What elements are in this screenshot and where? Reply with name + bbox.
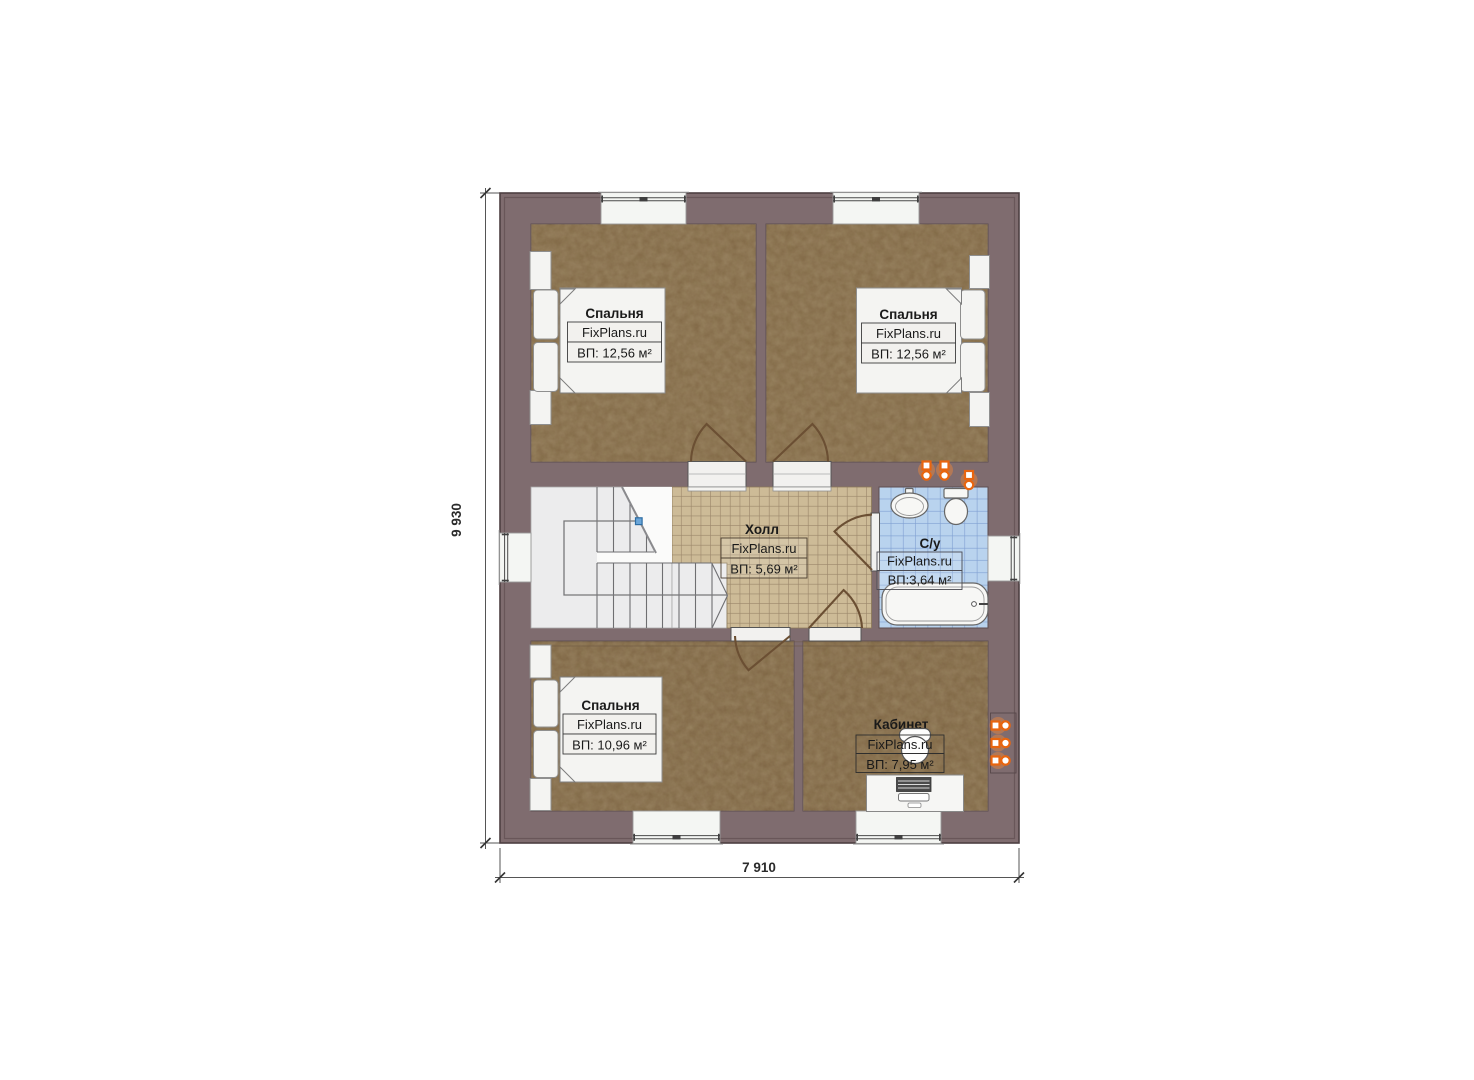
svg-text:FixPlans.ru: FixPlans.ru [577, 717, 642, 732]
svg-text:Спальня: Спальня [581, 698, 639, 713]
svg-text:FixPlans.ru: FixPlans.ru [876, 326, 941, 341]
svg-text:FixPlans.ru: FixPlans.ru [867, 737, 932, 752]
svg-text:ВП: 12,56 м²: ВП: 12,56 м² [577, 346, 652, 361]
svg-text:9 930: 9 930 [449, 503, 464, 537]
svg-text:ВП: 7,95 м²: ВП: 7,95 м² [866, 757, 934, 772]
svg-text:Спальня: Спальня [585, 306, 643, 321]
svg-text:7 910: 7 910 [742, 860, 776, 875]
svg-text:ВП: 5,69 м²: ВП: 5,69 м² [730, 562, 798, 577]
svg-text:FixPlans.ru: FixPlans.ru [731, 541, 796, 556]
svg-text:С/у: С/у [919, 536, 941, 551]
svg-text:ВП: 10,96 м²: ВП: 10,96 м² [572, 738, 647, 753]
svg-text:ВП: 12,56 м²: ВП: 12,56 м² [871, 347, 946, 362]
svg-text:Спальня: Спальня [879, 307, 937, 322]
svg-text:FixPlans.ru: FixPlans.ru [887, 554, 952, 569]
svg-text:Холл: Холл [745, 522, 779, 537]
svg-text:ВП:3,64 м²: ВП:3,64 м² [888, 573, 952, 588]
svg-text:FixPlans.ru: FixPlans.ru [582, 325, 647, 340]
